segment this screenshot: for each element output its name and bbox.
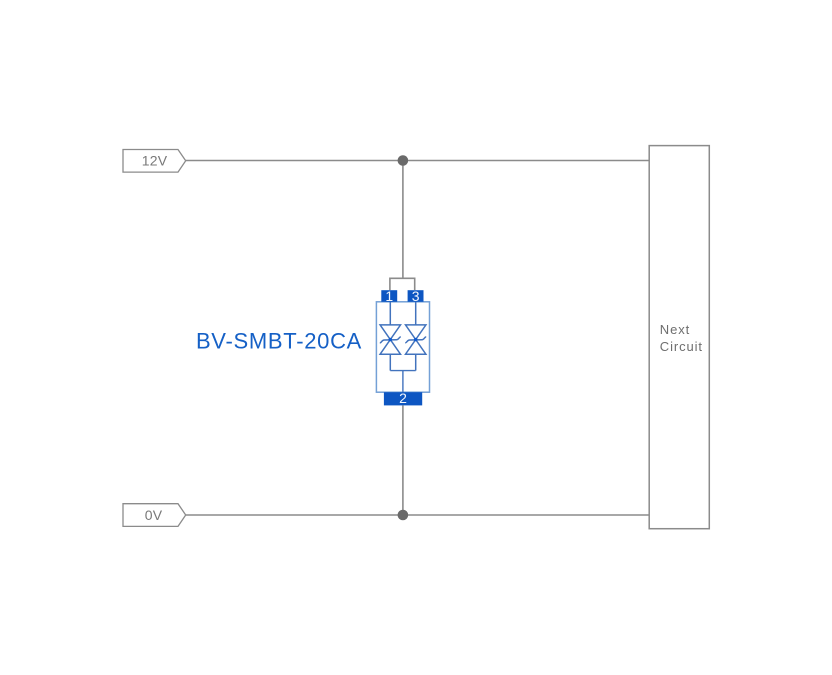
svg-text:Next: Next: [660, 322, 690, 337]
svg-text:2: 2: [399, 390, 407, 406]
svg-text:Circuit: Circuit: [660, 339, 703, 354]
svg-text:1: 1: [385, 288, 393, 304]
svg-text:0V: 0V: [145, 507, 163, 523]
svg-text:3: 3: [412, 288, 420, 304]
svg-text:BV-SMBT-20CA: BV-SMBT-20CA: [196, 328, 362, 353]
svg-text:12V: 12V: [142, 153, 168, 169]
